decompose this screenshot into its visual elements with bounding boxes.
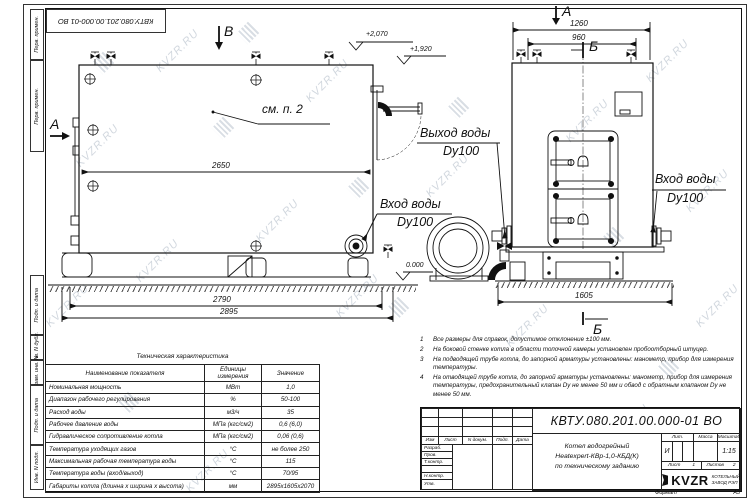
- lifting-eye-icon: [250, 74, 262, 86]
- elevation-0000: 0.000: [406, 262, 424, 269]
- pump-icon: [488, 242, 525, 280]
- spec-value: 70/95: [261, 468, 319, 479]
- title-doc-number: КВТУ.080.201.00.000-01 ВО: [532, 408, 741, 434]
- sheets-value: 2: [733, 463, 736, 468]
- valve-icon: [627, 50, 636, 63]
- sheet-label: Лист: [668, 463, 680, 468]
- sheets-label: Листов: [706, 463, 723, 468]
- spec-units: °С: [204, 456, 261, 467]
- elevation-1920: +1,920: [410, 46, 432, 53]
- role-utv: Утв.: [421, 479, 453, 490]
- spec-header-name: Наименование показателя: [46, 365, 204, 381]
- inlet-label-line1: Вход воды: [380, 198, 441, 211]
- product-line3: по техническому заданию: [555, 462, 639, 472]
- format-row: Формат А3: [655, 491, 740, 497]
- table-row: Диапазон рабочего регулирования%50-100: [46, 393, 319, 405]
- table-row: Габариты котла (длинна х ширина х высота…: [46, 479, 319, 491]
- spec-units: мм: [204, 480, 261, 491]
- spec-header-units: Единицы измерения: [204, 365, 261, 381]
- dim-2895-label: 2895: [220, 308, 238, 316]
- valve-icon: [91, 52, 100, 65]
- lifting-eye-icon: [87, 180, 99, 192]
- spec-value: 0,6 (6,0): [261, 419, 319, 430]
- dim-960-label: 960: [572, 34, 585, 42]
- spec-units: м3/ч: [204, 407, 261, 418]
- sign-column: [492, 444, 513, 490]
- inlet-flange-icon: [345, 235, 367, 257]
- fan-icon: [427, 217, 489, 281]
- front-view-drawing: [492, 6, 726, 325]
- ground-hatch: [48, 286, 416, 292]
- spec-value: 1,0: [261, 382, 319, 393]
- spec-name: Расход воды: [46, 407, 204, 418]
- dim-1260-label: 1260: [570, 20, 588, 28]
- format-value: А3: [733, 491, 740, 497]
- spec-name: Габариты котла (длинна х ширина х высота…: [46, 480, 204, 491]
- format-label: Формат: [655, 491, 677, 497]
- lifting-eye-icon: [84, 73, 96, 85]
- note-number: 4: [420, 374, 433, 399]
- note-item: 2На боковой стенке котла в области топоч…: [420, 346, 738, 354]
- spec-value: 115: [261, 456, 319, 467]
- sheet-value: 1: [692, 463, 695, 468]
- see-note-ref: см. п. 2: [262, 103, 303, 115]
- table-row: Гидравлическое сопротивление котлаМПа (к…: [46, 430, 319, 442]
- section-marker-b: В: [224, 24, 233, 38]
- date-column: [512, 444, 533, 490]
- lifting-eye-icon: [87, 124, 99, 136]
- valve-icon: [384, 245, 393, 258]
- spec-value: не более 250: [261, 443, 319, 454]
- company-flag-icon: [662, 474, 668, 486]
- title-block: Изм Лист N докум. Подп. Дата Разраб. Про…: [420, 407, 740, 490]
- company-logo-text: KVZR: [671, 473, 708, 488]
- note-number: 1: [420, 336, 433, 344]
- spec-table: Наименование показателя Единицы измерени…: [45, 364, 320, 493]
- dim-2650-label: 2650: [212, 162, 230, 170]
- ground-hatch: [494, 282, 674, 288]
- scale-value: 1:15: [717, 441, 741, 462]
- table-row: Рабочее давление водыМПа (кгс/см2)0,6 (6…: [46, 418, 319, 430]
- spec-units: МВт: [204, 382, 261, 393]
- spec-name: Температура уходящих газов: [46, 443, 204, 454]
- outlet-label-line1: Выход воды: [420, 127, 490, 140]
- section-marker-b-bottom: Б: [593, 322, 602, 336]
- lifting-eye-icon: [250, 240, 262, 252]
- table-row: Номинальная мощностьМВт1,0: [46, 381, 319, 393]
- outlet-label-line2: Dy100: [443, 145, 479, 158]
- spec-value: 2895х1605х2070: [261, 480, 319, 491]
- note-text: Все размеры для справок, допустимое откл…: [433, 336, 738, 344]
- product-line1: Котел водогрейный: [565, 442, 630, 452]
- side-view-drawing: [48, 26, 525, 322]
- names-column: [452, 444, 493, 490]
- note-text: На отводящей трубе котла, до запорной ар…: [433, 374, 738, 399]
- company-name-line2: ЗАВОД РЭП: [712, 480, 738, 486]
- valve-icon: [252, 52, 261, 65]
- spec-name: Номинальная мощность: [46, 382, 204, 393]
- elevation-2070: +2,070: [366, 31, 388, 38]
- valve-icon: [107, 52, 116, 65]
- notes-list: 1Все размеры для справок, допустимое отк…: [420, 336, 738, 401]
- inlet-right-label-line1: Вход воды: [655, 173, 716, 186]
- inlet-label-line2: Dy100: [397, 216, 433, 229]
- spec-units: МПа (кгс/см2): [204, 431, 261, 442]
- spec-name: Максимальная рабочая температура воды: [46, 456, 204, 467]
- table-row: Температура воды (вход/выход)°С70/95: [46, 467, 319, 479]
- note-item: 3На подводящей трубе котла, до запорной …: [420, 356, 738, 373]
- note-item: 1Все размеры для справок, допустимое отк…: [420, 336, 738, 344]
- inlet-right-label-line2: Dy100: [667, 192, 703, 205]
- spec-header-value: Значение: [261, 365, 319, 381]
- note-text: На боковой стенке котла в области топочн…: [433, 346, 738, 354]
- valve-icon: [517, 50, 526, 63]
- spec-name: Рабочее давление воды: [46, 419, 204, 430]
- valve-icon: [325, 52, 334, 65]
- company-cell: KVZR КОТЕЛЬНЫЙ ЗАВОД РЭП: [661, 469, 741, 491]
- spec-name: Гидравлическое сопротивление котла: [46, 431, 204, 442]
- spec-value: 35: [261, 407, 319, 418]
- note-number: 3: [420, 356, 433, 373]
- section-marker-b-top: Б: [589, 39, 598, 53]
- flange-left-icon: [492, 226, 511, 246]
- spec-units: °С: [204, 443, 261, 454]
- section-marker-a: А: [50, 117, 59, 131]
- mass-value: [693, 441, 718, 462]
- note-text: На подводящей трубе котла, до запорной а…: [433, 356, 738, 373]
- note-item: 4На отводящей трубе котла, до запорной а…: [420, 374, 738, 399]
- table-row: Температура уходящих газов°Сне более 250: [46, 442, 319, 454]
- spec-value: 0,06 (0,6): [261, 431, 319, 442]
- section-marker-a-front: А: [562, 4, 571, 18]
- spec-name: Диапазон рабочего регулирования: [46, 394, 204, 405]
- spec-units: МПа (кгс/см2): [204, 419, 261, 430]
- spec-value: 50-100: [261, 394, 319, 405]
- table-row: Расход водым3/ч35: [46, 406, 319, 418]
- spec-units: °С: [204, 468, 261, 479]
- table-row: Максимальная рабочая температура воды°С1…: [46, 455, 319, 467]
- valve-icon: [533, 50, 542, 63]
- dim-1605-label: 1605: [575, 292, 593, 300]
- product-name: Котел водогрейный Heatexpert-КВр-1,0-КБД…: [532, 433, 662, 491]
- spec-name: Температура воды (вход/выход): [46, 468, 204, 479]
- spec-table-header: Наименование показателя Единицы измерени…: [46, 365, 319, 381]
- dim-2790-label: 2790: [213, 296, 231, 304]
- product-line2: Heatexpert-КВр-1,0-КБД(К): [555, 452, 638, 462]
- spec-units: %: [204, 394, 261, 405]
- spec-table-title: Техническая характеристика: [45, 354, 320, 361]
- note-number: 2: [420, 346, 433, 354]
- drawing-sheet: KVZR.RU KVZR.RU KVZR.RU KVZR.RU KVZR.RU …: [0, 0, 750, 500]
- flange-right-icon: [652, 226, 671, 246]
